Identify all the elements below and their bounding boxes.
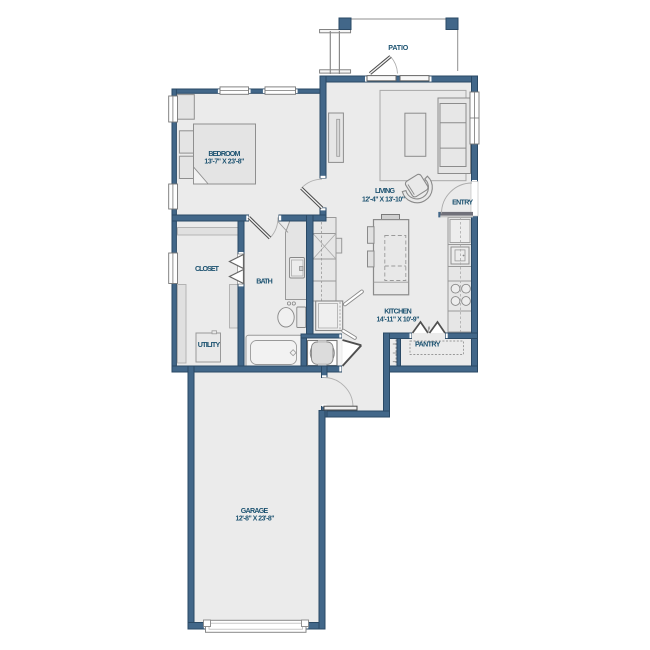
svg-text:14'-11" X 10'-9": 14'-11" X 10'-9" <box>377 317 420 324</box>
svg-text:ENTRY: ENTRY <box>452 198 473 206</box>
svg-text:UTILITY: UTILITY <box>198 341 221 349</box>
svg-text:12'-4" X 13'-10": 12'-4" X 13'-10" <box>362 196 405 203</box>
svg-text:12'-8" X 23'-8": 12'-8" X 23'-8" <box>236 516 275 523</box>
svg-text:BATH: BATH <box>256 278 273 286</box>
svg-text:BEDROOM: BEDROOM <box>208 150 240 158</box>
svg-text:LIVING: LIVING <box>375 187 395 195</box>
svg-text:PATIO: PATIO <box>388 44 408 52</box>
svg-text:CLOSET: CLOSET <box>195 265 220 273</box>
svg-text:PANTRY: PANTRY <box>415 340 441 348</box>
svg-text:GARAGE: GARAGE <box>241 507 269 515</box>
svg-text:KITCHEN: KITCHEN <box>384 308 412 316</box>
svg-text:13'-7" X 23'-8": 13'-7" X 23'-8" <box>204 158 244 165</box>
